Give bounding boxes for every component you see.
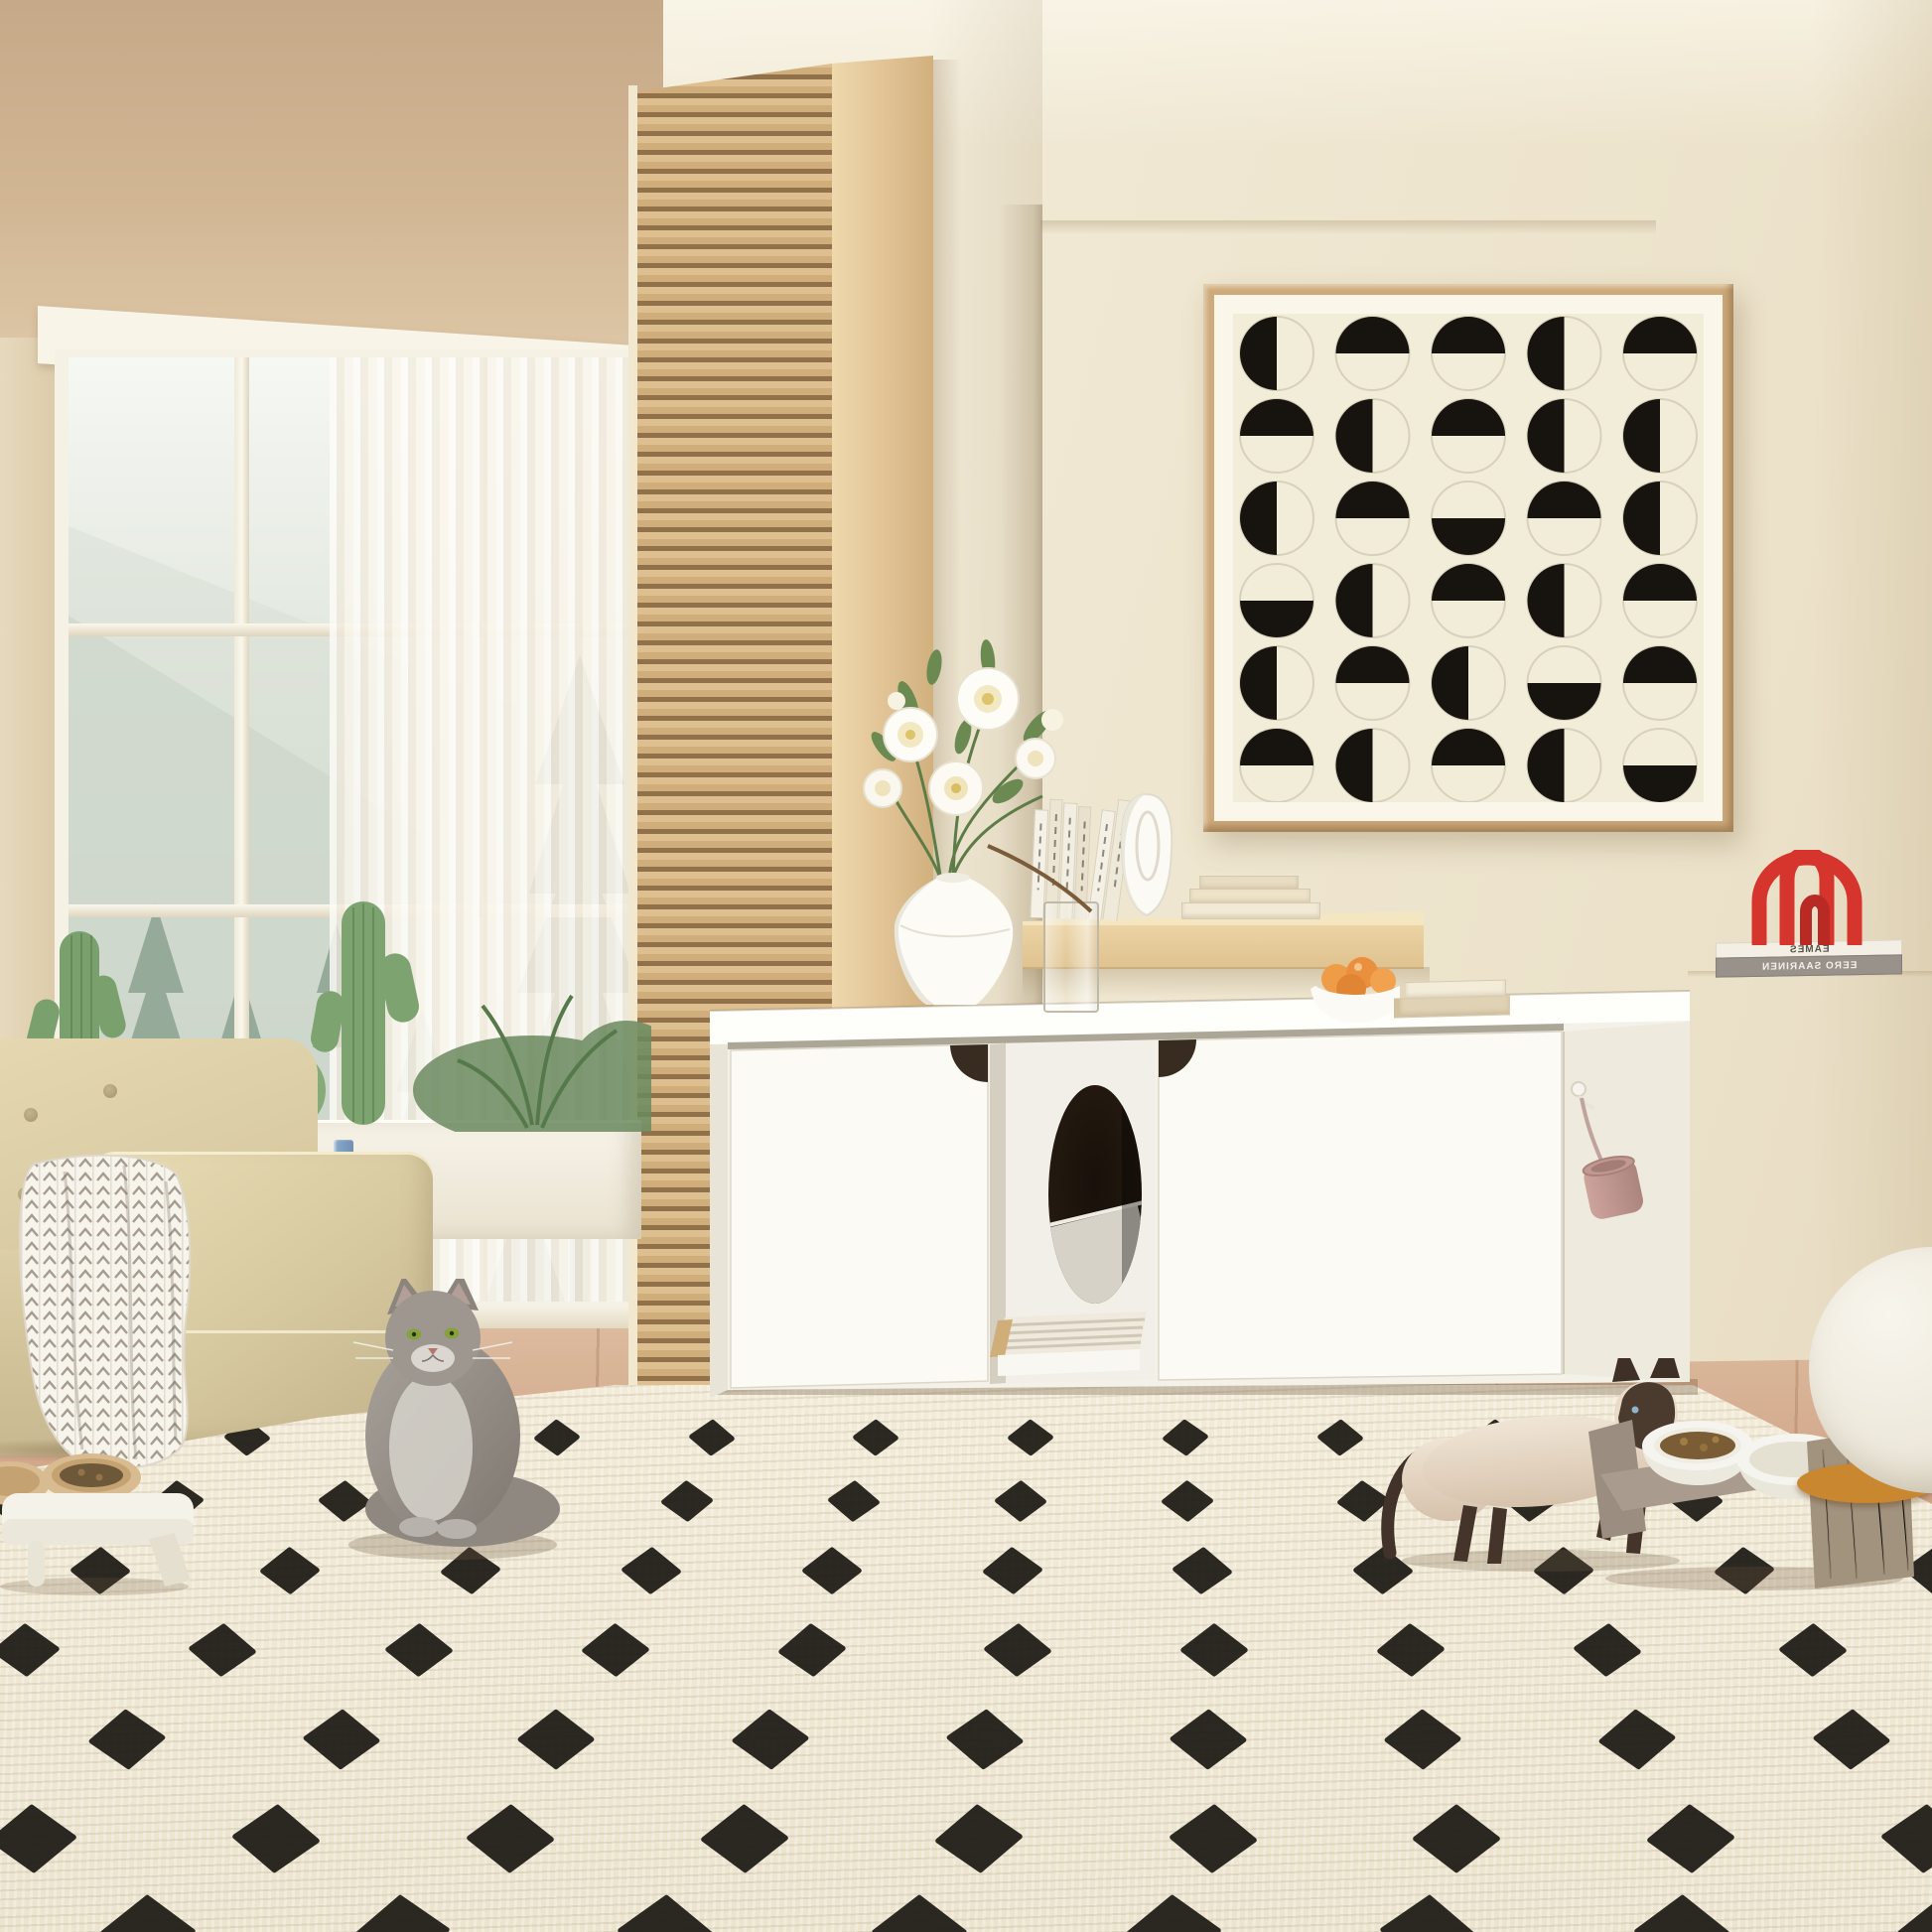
gray-cat <box>336 1279 574 1567</box>
white-sculpture-vase <box>1114 788 1179 921</box>
half-circle-art-pattern <box>1233 314 1704 802</box>
white-vase <box>895 873 1013 1005</box>
cabinet-left-side <box>710 1042 728 1398</box>
low-pet-feeder <box>0 1442 204 1595</box>
cabinet-right-door <box>1159 1032 1562 1380</box>
wall-art-canvas <box>1233 314 1704 802</box>
red-arch-sculpture <box>1743 850 1870 945</box>
shelf-book-stack <box>1181 870 1326 921</box>
twig <box>988 846 1091 911</box>
feeder-leg <box>28 1541 45 1587</box>
living-room-scene: EAMES EERO SAARINEN <box>0 0 1932 1932</box>
wall-hook <box>1572 1082 1586 1096</box>
cabinet-left-door <box>731 1044 988 1388</box>
tuft-button <box>103 1084 117 1098</box>
book-saarinen: EERO SAARINEN <box>1716 954 1902 977</box>
cat-litter-cabinet <box>695 978 1708 1420</box>
book-eames-title: EAMES <box>1789 944 1830 956</box>
book-saarinen-title: EERO SAARINEN <box>1761 960 1857 973</box>
flower-bouquet-vase <box>839 608 1117 1017</box>
wall-art-frame <box>1203 284 1733 832</box>
stack-book-bottom <box>1181 902 1320 919</box>
flat-book-bottom <box>1394 995 1510 1018</box>
wall-shading-right <box>1813 0 1932 1410</box>
cabinet-top-books <box>1394 976 1505 1027</box>
knit-throw-blanket <box>5 1142 233 1479</box>
tuft-button <box>24 1108 38 1122</box>
niche-top-shadow <box>1040 220 1656 234</box>
